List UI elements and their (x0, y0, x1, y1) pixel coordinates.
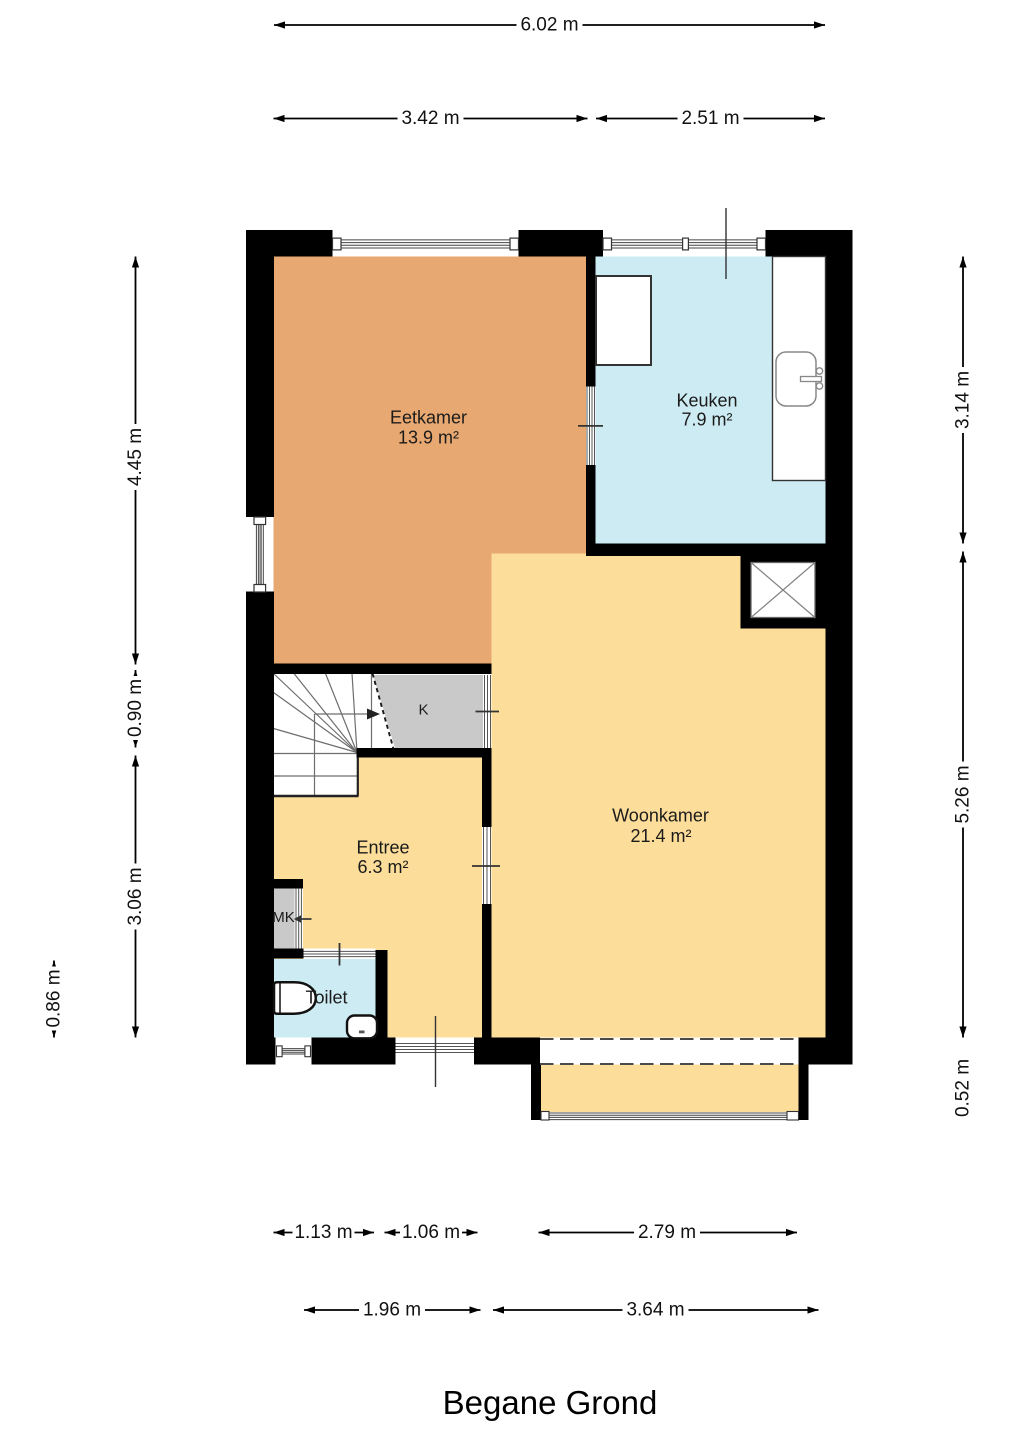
svg-text:1.06 m: 1.06 m (402, 1222, 460, 1243)
svg-text:3.42 m: 3.42 m (401, 108, 459, 129)
svg-text:Eetkamer: Eetkamer (390, 408, 467, 428)
svg-text:13.9 m²: 13.9 m² (398, 427, 459, 447)
svg-text:6.3 m²: 6.3 m² (357, 857, 408, 877)
svg-text:3.14 m: 3.14 m (953, 371, 974, 429)
svg-text:2.51 m: 2.51 m (681, 108, 739, 129)
svg-text:21.4 m²: 21.4 m² (630, 826, 691, 846)
svg-text:5.26 m: 5.26 m (953, 765, 974, 823)
svg-text:MK: MK (272, 909, 295, 926)
svg-text:0.52 m: 0.52 m (953, 1059, 974, 1117)
svg-text:Begane Grond: Begane Grond (443, 1384, 658, 1421)
svg-text:3.64 m: 3.64 m (626, 1300, 684, 1321)
svg-text:1.96 m: 1.96 m (363, 1300, 421, 1321)
svg-text:Keuken: Keuken (676, 391, 737, 411)
svg-text:0.90 m: 0.90 m (125, 679, 146, 737)
svg-text:6.02 m: 6.02 m (520, 15, 578, 36)
svg-text:Toilet: Toilet (305, 988, 347, 1008)
svg-text:7.9 m²: 7.9 m² (681, 410, 732, 430)
svg-text:2.79 m: 2.79 m (638, 1222, 696, 1243)
svg-text:K: K (418, 702, 428, 719)
svg-text:Entree: Entree (356, 838, 409, 858)
svg-text:1.13 m: 1.13 m (294, 1222, 352, 1243)
svg-text:4.45 m: 4.45 m (125, 428, 146, 486)
svg-text:3.06 m: 3.06 m (125, 867, 146, 925)
svg-text:0.86 m: 0.86 m (44, 969, 65, 1027)
svg-text:Woonkamer: Woonkamer (612, 806, 709, 826)
